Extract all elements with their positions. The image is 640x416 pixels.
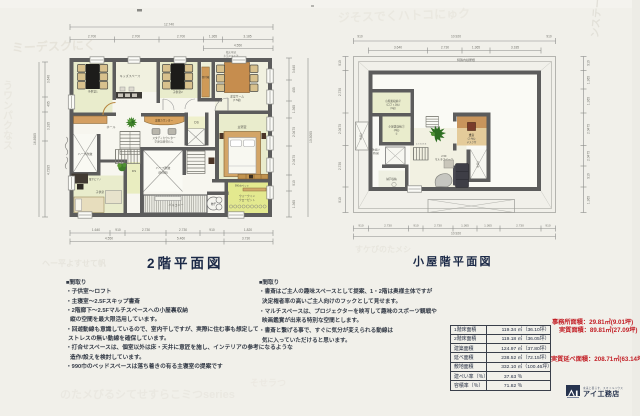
svg-text:物干: 物干 xyxy=(211,202,217,206)
svg-text:4.550: 4.550 xyxy=(105,237,113,241)
svg-text:すケびのたメシ: すケびのたメシ xyxy=(355,244,411,254)
svg-text:(新木組): (新木組) xyxy=(158,171,168,175)
svg-text:910: 910 xyxy=(292,180,296,186)
svg-text:1.365: 1.365 xyxy=(292,105,296,113)
svg-text:①: ① xyxy=(395,133,397,136)
svg-text:吹抜け: 吹抜け xyxy=(359,132,363,140)
svg-text:洋室サーム: 洋室サーム xyxy=(230,95,244,99)
svg-text:1.365: 1.365 xyxy=(587,76,591,84)
svg-text:1.820: 1.820 xyxy=(244,228,252,232)
svg-text:小屋裏収納①: 小屋裏収納① xyxy=(388,125,404,129)
svg-text:405: 405 xyxy=(47,101,51,107)
svg-text:910: 910 xyxy=(209,228,215,232)
svg-text:ハーフ吹抜: ハーフ吹抜 xyxy=(78,151,93,156)
svg-text:5.460: 5.460 xyxy=(177,237,185,241)
svg-text:小屋裏収納②: 小屋裏収納② xyxy=(385,99,401,103)
svg-text:スタディカウンター: スタディカウンター xyxy=(152,136,176,140)
svg-text:2.700: 2.700 xyxy=(132,35,140,39)
svg-text:910: 910 xyxy=(546,35,552,39)
svg-text:バルコニー: バルコニー xyxy=(169,203,184,207)
svg-text:DS: DS xyxy=(132,169,136,173)
svg-text:2.0475: 2.0475 xyxy=(587,124,591,134)
svg-text:10.920: 10.920 xyxy=(451,35,461,39)
svg-text:吹抜け: 吹抜け xyxy=(476,160,480,168)
svg-text:ヘー平よすせて帆: ヘー平よすせて帆 xyxy=(42,258,106,268)
svg-text:ホール: ホール xyxy=(106,124,115,129)
svg-text:クローゼット: クローゼット xyxy=(239,198,255,202)
svg-text:910: 910 xyxy=(587,173,591,179)
svg-text:990巾ベッド: 990巾ベッド xyxy=(235,184,250,188)
svg-text:本棚カウンター: 本棚カウンター xyxy=(155,119,174,123)
svg-text:2.730: 2.730 xyxy=(142,228,150,232)
svg-text:書斎: 書斎 xyxy=(469,133,475,137)
svg-text:2.730: 2.730 xyxy=(338,88,342,96)
svg-text:(2.4帖): (2.4帖) xyxy=(468,137,476,141)
svg-text:4.7285: 4.7285 xyxy=(47,165,51,175)
svg-text:16.8985: 16.8985 xyxy=(33,133,37,145)
svg-text:吹抜け: 吹抜け xyxy=(372,148,380,152)
svg-text:2.730: 2.730 xyxy=(384,224,392,228)
svg-text:910: 910 xyxy=(338,197,342,203)
svg-text:1.365: 1.365 xyxy=(587,97,591,105)
svg-text:910: 910 xyxy=(413,224,418,228)
svg-text:電子ピアノ: 電子ピアノ xyxy=(89,177,101,181)
svg-text:12.740: 12.740 xyxy=(164,23,174,27)
svg-text:子供室1: 子供室1 xyxy=(88,90,98,94)
svg-text:2.0475: 2.0475 xyxy=(292,155,296,165)
svg-text:2.0475: 2.0475 xyxy=(292,127,296,137)
svg-text:910: 910 xyxy=(357,35,363,39)
svg-text:910: 910 xyxy=(545,224,550,228)
svg-text:子供室2: 子供室2 xyxy=(173,90,183,94)
svg-text:子供室: 子供室 xyxy=(96,190,105,194)
svg-text:2.730: 2.730 xyxy=(338,162,342,170)
svg-text:2.700: 2.700 xyxy=(177,35,185,39)
svg-text:(3帖): (3帖) xyxy=(394,128,400,132)
svg-text:目付箱: 目付箱 xyxy=(202,75,210,79)
svg-text:(3帖): (3帖) xyxy=(390,106,396,110)
svg-text:910: 910 xyxy=(587,60,591,66)
svg-text:3.185: 3.185 xyxy=(47,122,51,130)
svg-text:1.365: 1.365 xyxy=(209,35,217,39)
svg-text:学習/読書/団らん: 学習/読書/団らん xyxy=(155,140,174,144)
svg-text:2.0475: 2.0475 xyxy=(338,124,342,134)
svg-text:納戸収納: 納戸収納 xyxy=(386,177,397,181)
svg-text:主寝室: 主寝室 xyxy=(237,124,246,129)
svg-text:3.185: 3.185 xyxy=(243,35,251,39)
svg-text:910: 910 xyxy=(338,60,342,66)
svg-text:2.730: 2.730 xyxy=(434,224,442,228)
svg-text:3.640: 3.640 xyxy=(47,75,51,83)
svg-text:2.0475: 2.0475 xyxy=(587,151,591,161)
svg-text:1.365: 1.365 xyxy=(292,200,296,208)
svg-text:3.185: 3.185 xyxy=(511,46,519,50)
svg-text:1 2 3 4 5 6: 1 2 3 4 5 6 xyxy=(416,144,427,146)
svg-text:910: 910 xyxy=(115,228,121,232)
svg-text:10.5005: 10.5005 xyxy=(309,131,313,143)
svg-text:うワンパクなス: うワンパクなス xyxy=(1,80,13,150)
svg-text:4.550: 4.550 xyxy=(234,44,242,48)
svg-text:3.730: 3.730 xyxy=(242,237,250,241)
svg-text:1.365: 1.365 xyxy=(587,196,591,204)
svg-text:(ロフト1帖): (ロフト1帖) xyxy=(386,103,399,107)
svg-text:1.365: 1.365 xyxy=(484,224,492,228)
svg-text:キッズスペース: キッズスペース xyxy=(120,73,141,78)
svg-text:10.920: 10.920 xyxy=(451,232,461,236)
svg-text:1.365: 1.365 xyxy=(461,224,469,228)
svg-text:2.730: 2.730 xyxy=(516,224,524,228)
svg-text:2.700: 2.700 xyxy=(88,35,96,39)
svg-text:910: 910 xyxy=(358,224,363,228)
svg-text:デスク付: デスク付 xyxy=(467,140,477,144)
svg-text:2.730: 2.730 xyxy=(179,228,187,232)
svg-text:1.640: 1.640 xyxy=(92,228,100,232)
svg-text:(7.5帖): (7.5帖) xyxy=(233,98,241,102)
svg-text:そせラつ: そせラつ xyxy=(250,378,286,388)
svg-text:のたメびるシてせすらこミつseries: のたメびるシてせすらこミつseries xyxy=(60,387,235,401)
svg-text:3.640: 3.640 xyxy=(394,46,402,50)
svg-text:3.640: 3.640 xyxy=(292,65,296,73)
svg-text:ハーフ吹抜: ハーフ吹抜 xyxy=(156,165,171,170)
svg-text:455: 455 xyxy=(292,87,296,93)
svg-text:(吹抜): (吹抜) xyxy=(373,151,380,155)
svg-text:ウォークイン: ウォークイン xyxy=(239,194,255,198)
svg-text:2.5F: 2.5F xyxy=(441,154,447,158)
svg-text:1.365: 1.365 xyxy=(472,46,480,50)
svg-text:特殊内縫屋根: 特殊内縫屋根 xyxy=(457,57,475,62)
svg-text:DS: DS xyxy=(194,121,198,125)
svg-text:2.730: 2.730 xyxy=(441,46,449,50)
